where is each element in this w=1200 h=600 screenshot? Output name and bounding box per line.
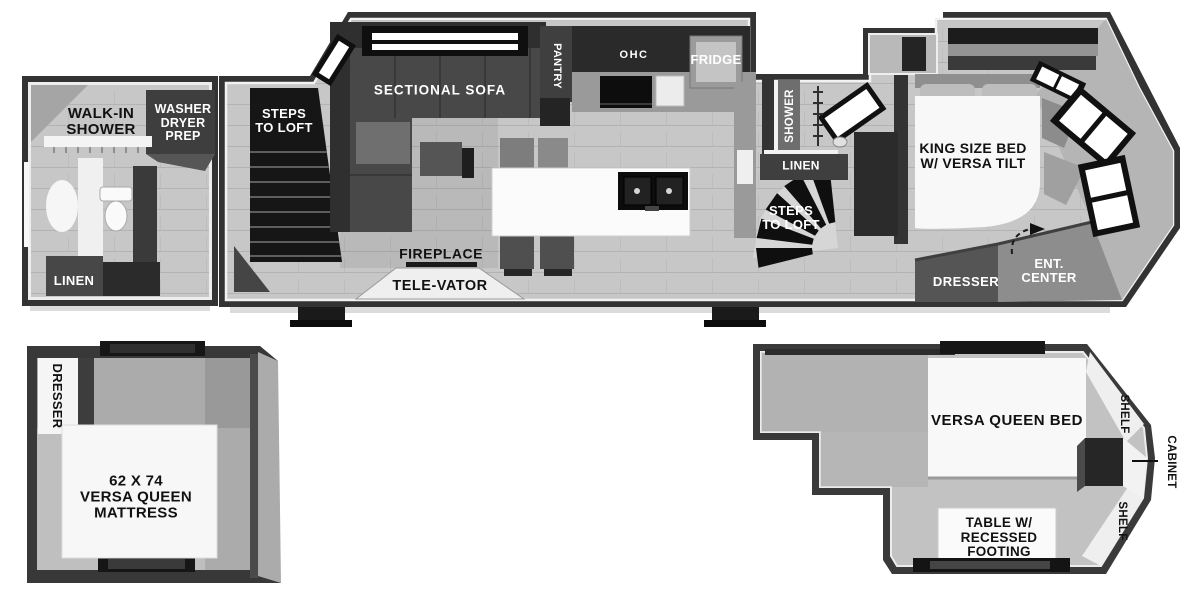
cooktop xyxy=(600,76,652,108)
loft-cabinet xyxy=(1085,438,1123,486)
chair xyxy=(420,142,462,176)
linen-cabinet-front xyxy=(46,256,103,296)
entry-step-right xyxy=(704,307,766,327)
bath-cabinet xyxy=(133,166,157,262)
slide-window xyxy=(362,26,528,56)
main-body-section xyxy=(219,12,1180,327)
ottoman xyxy=(356,122,410,164)
kitchen-island xyxy=(492,168,690,236)
loft-queen-bed xyxy=(928,358,1086,478)
loft-rear-section xyxy=(753,341,1158,574)
bath-rug xyxy=(46,180,78,232)
chair xyxy=(538,138,568,168)
chair xyxy=(500,233,534,269)
loft-mattress xyxy=(62,425,217,558)
rv-floorplan-page: WALK-IN SHOWER WASHER DRYER PREP LINEN S… xyxy=(0,0,1200,600)
loft-front-section xyxy=(27,341,281,583)
wardrobe xyxy=(854,132,898,236)
entry-door xyxy=(869,34,937,74)
vanity xyxy=(78,158,103,258)
fireplace-unit xyxy=(406,262,477,267)
front-bath-section xyxy=(22,76,218,311)
king-bed xyxy=(915,96,1040,229)
washer-dryer-block xyxy=(146,90,215,154)
entry-step-left xyxy=(290,307,352,327)
sink xyxy=(833,137,847,147)
loft-dresser xyxy=(38,358,78,434)
chair xyxy=(540,233,574,269)
floor-plan-graphic xyxy=(0,0,1200,600)
pantry-cabinet xyxy=(540,26,572,102)
linen-cabinet-mid xyxy=(760,154,848,180)
chair xyxy=(500,138,534,168)
bath-window xyxy=(24,162,29,247)
